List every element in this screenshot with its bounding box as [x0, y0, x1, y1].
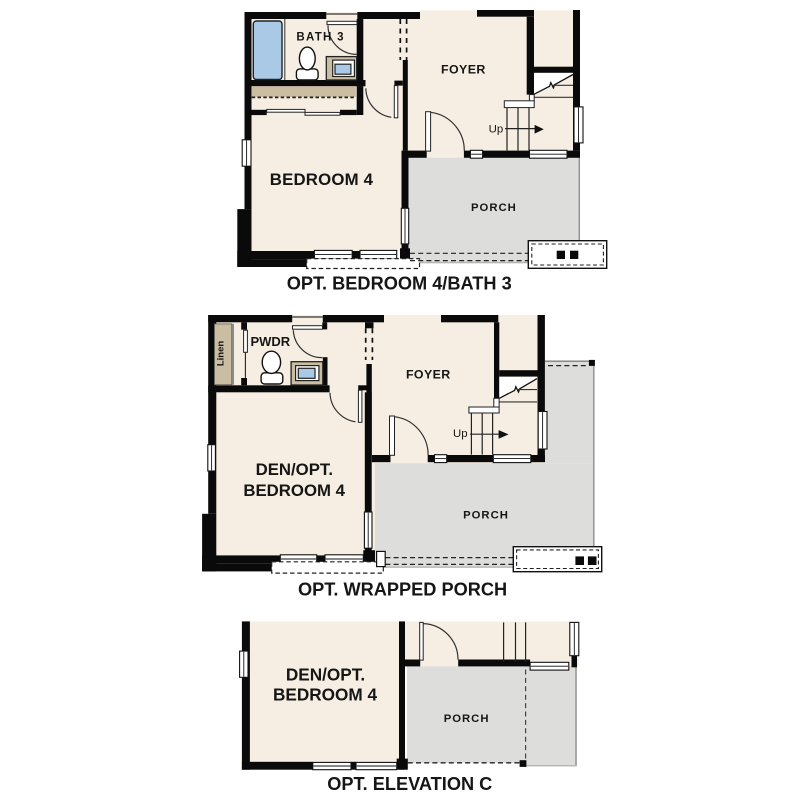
svg-text:OPT. BEDROOM 4/BATH 3: OPT. BEDROOM 4/BATH 3	[287, 273, 512, 293]
svg-text:DEN/OPT.: DEN/OPT.	[256, 460, 333, 479]
svg-text:BEDROOM 4: BEDROOM 4	[243, 481, 345, 500]
svg-text:PORCH: PORCH	[471, 202, 517, 214]
svg-text:Up: Up	[453, 428, 468, 440]
svg-text:PORCH: PORCH	[444, 713, 490, 725]
svg-text:BEDROOM 4: BEDROOM 4	[270, 170, 374, 189]
svg-text:PORCH: PORCH	[463, 510, 509, 522]
svg-text:OPT. ELEVATION C: OPT. ELEVATION C	[327, 774, 492, 794]
svg-text:Up: Up	[489, 124, 504, 136]
svg-text:BATH 3: BATH 3	[296, 31, 344, 43]
svg-text:FOYER: FOYER	[441, 63, 486, 77]
svg-text:OPT. WRAPPED PORCH: OPT. WRAPPED PORCH	[298, 579, 507, 599]
svg-text:PWDR: PWDR	[250, 334, 290, 349]
svg-text:FOYER: FOYER	[406, 368, 451, 382]
svg-text:Linen: Linen	[215, 341, 226, 367]
svg-text:BEDROOM 4: BEDROOM 4	[273, 685, 378, 705]
svg-text:DEN/OPT.: DEN/OPT.	[286, 665, 365, 685]
